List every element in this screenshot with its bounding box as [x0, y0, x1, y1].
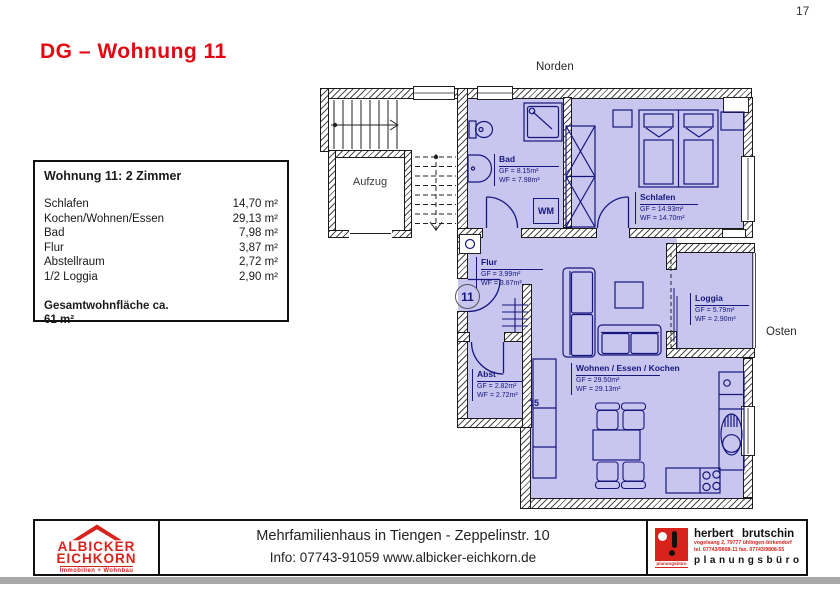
- albicker-logo: ALBICKER EICHKORN Immobilien + Wohnbau: [35, 521, 160, 574]
- footer-center: Mehrfamilienhaus in Tiengen - Zeppelinst…: [160, 521, 646, 574]
- room-gf: GF = 8.15m²: [499, 167, 559, 177]
- info-row: Bad7,98 m²: [44, 226, 278, 241]
- compass-north-label: Norden: [536, 61, 574, 73]
- wall-south: [520, 498, 753, 509]
- room-gf: GF = 29.50m²: [576, 376, 660, 386]
- window-schlafen-loggia: [722, 229, 746, 238]
- room-name: Kochen/Wohnen/Essen: [44, 212, 164, 227]
- room-gf: GF = 14.93m²: [640, 205, 698, 215]
- stairs-up: [331, 100, 398, 149]
- logo-circle: [658, 532, 667, 541]
- page-title: DG – Wohnung 11: [40, 40, 227, 64]
- aufzug-door-opening: [349, 229, 392, 239]
- room-name: Bad: [499, 154, 559, 167]
- planungsbuero-icon: planungsbüro: [655, 528, 688, 568]
- wall-loggia-bottom: [666, 348, 755, 358]
- apartment-info-box: Wohnung 11: 2 Zimmer Schlafen14,70 m² Ko…: [33, 160, 289, 322]
- room-wf: WF = 14.70m²: [640, 214, 698, 224]
- compass-east-label: Osten: [766, 326, 797, 338]
- brutschin-address: vogelsang 2, 79777 ühlingen-birkendorf: [694, 540, 803, 547]
- room-label-wohnen: Wohnen / Essen / Kochen GF = 29.50m² WF …: [571, 363, 660, 395]
- wall-aufzug-top: [328, 150, 412, 158]
- wall-bad-south-b: [521, 228, 597, 238]
- room-area: 2,90 m²: [239, 270, 278, 285]
- washing-machine-symbol: WM: [533, 198, 559, 224]
- stairs-run-arrow: [350, 155, 442, 234]
- wall-loggia-stub-top: [666, 243, 677, 270]
- floorplan-page: 17 DG – Wohnung 11 Norden Osten Wohnung …: [0, 0, 840, 595]
- room-name: Abstellraum: [44, 255, 105, 270]
- logo-bar: [672, 531, 677, 548]
- steps-label: 15: [529, 398, 539, 408]
- brutschin-name: herbert brutschin: [694, 528, 803, 540]
- room-gf: GF = 3.99m²: [481, 270, 543, 280]
- room-name: Loggia: [695, 293, 749, 306]
- room-gf: GF = 5.79m²: [695, 306, 749, 316]
- chimney-shaft: [723, 97, 749, 113]
- wall-loggia-top: [666, 243, 755, 253]
- apartment-number-badge: 11: [455, 284, 480, 309]
- brutschin-phone: tel. 07743/9808-11 fax. 07743/9808-55: [694, 547, 803, 554]
- room-name: Schlafen: [44, 197, 89, 212]
- wall-stair-west: [320, 88, 329, 152]
- room-area: 14,70 m²: [233, 197, 278, 212]
- room-area: 7,98 m²: [239, 226, 278, 241]
- room-fill-kueche: [677, 352, 747, 500]
- window-kitchen-east: [741, 406, 755, 456]
- room-area: 3,87 m²: [239, 241, 278, 256]
- installation-shaft: [459, 234, 481, 254]
- room-wf: WF = 2.90m²: [695, 315, 749, 325]
- wall-aufzug-right: [404, 150, 412, 238]
- albicker-subtitle: Immobilien + Wohnbau: [60, 566, 134, 574]
- footer-bar: ALBICKER EICHKORN Immobilien + Wohnbau M…: [33, 519, 808, 576]
- elevator-label: Aufzug: [345, 176, 395, 188]
- room-label-flur: Flur GF = 3.99m² WF = 3.87m²: [476, 257, 543, 289]
- room-area: 2,72 m²: [239, 255, 278, 270]
- room-wf: WF = 7.98m²: [499, 176, 559, 186]
- room-gf: GF = 2.82m²: [477, 382, 523, 392]
- info-box-title: Wohnung 11: 2 Zimmer: [44, 169, 278, 183]
- room-wf: WF = 29.13m²: [576, 385, 660, 395]
- room-label-abst: Abst GF = 2.82m² WF = 2.72m²: [472, 369, 523, 401]
- project-title: Mehrfamilienhaus in Tiengen - Zeppelinst…: [160, 528, 646, 544]
- albicker-line2: EICHKORN: [56, 553, 136, 565]
- window-north-2: [477, 86, 513, 100]
- stairs-dashed-run: [415, 154, 456, 231]
- total-area-label: Gesamtwohnfläche ca.: [44, 299, 278, 313]
- wall-north: [326, 88, 752, 99]
- info-row: Flur3,87 m²: [44, 241, 278, 256]
- room-name: 1/2 Loggia: [44, 270, 98, 285]
- room-name: Bad: [44, 226, 64, 241]
- room-wf: WF = 2.72m²: [477, 391, 523, 401]
- brutschin-type: planungsbüro: [694, 554, 803, 567]
- wall-west-lower: [457, 311, 468, 428]
- room-name: Wohnen / Essen / Kochen: [576, 363, 660, 376]
- page-edge-strip: [0, 577, 840, 584]
- wall-west-living: [520, 418, 531, 509]
- contact-info: Info: 07743-91059 www.albicker-eichkorn.…: [160, 550, 646, 565]
- total-area-value: 61 m²: [44, 313, 278, 327]
- room-label-schlafen: Schlafen GF = 14.93m² WF = 14.70m²: [635, 192, 698, 224]
- wall-bad-schlafen: [563, 97, 572, 228]
- logo-dot: [669, 550, 675, 556]
- room-name: Schlafen: [640, 192, 698, 205]
- info-row: 1/2 Loggia2,90 m²: [44, 270, 278, 285]
- logo-caption: planungsbüro: [655, 561, 688, 567]
- room-wf: WF = 3.87m²: [481, 279, 543, 289]
- window-north-1: [413, 86, 455, 100]
- window-schlafen-east: [741, 156, 755, 222]
- brutschin-text: herbert brutschin vogelsang 2, 79777 ühl…: [694, 528, 803, 567]
- info-row: Kochen/Wohnen/Essen29,13 m²: [44, 212, 278, 227]
- info-row: Abstellraum2,72 m²: [44, 255, 278, 270]
- page-number: 17: [796, 4, 809, 18]
- wall-aufzug-left: [328, 150, 336, 238]
- wall-abst-bottom: [457, 418, 527, 428]
- room-name: Flur: [481, 257, 543, 270]
- info-row: Schlafen14,70 m²: [44, 197, 278, 212]
- room-name: Abst: [477, 369, 523, 382]
- wall-abst-top-a: [457, 332, 470, 342]
- room-name: Flur: [44, 241, 64, 256]
- room-area: 29,13 m²: [233, 212, 278, 227]
- room-label-bad: Bad GF = 8.15m² WF = 7.98m²: [494, 154, 559, 186]
- room-label-loggia: Loggia GF = 5.79m² WF = 2.90m²: [690, 293, 749, 325]
- brutschin-logo-block: planungsbüro herbert brutschin vogelsang…: [646, 521, 806, 574]
